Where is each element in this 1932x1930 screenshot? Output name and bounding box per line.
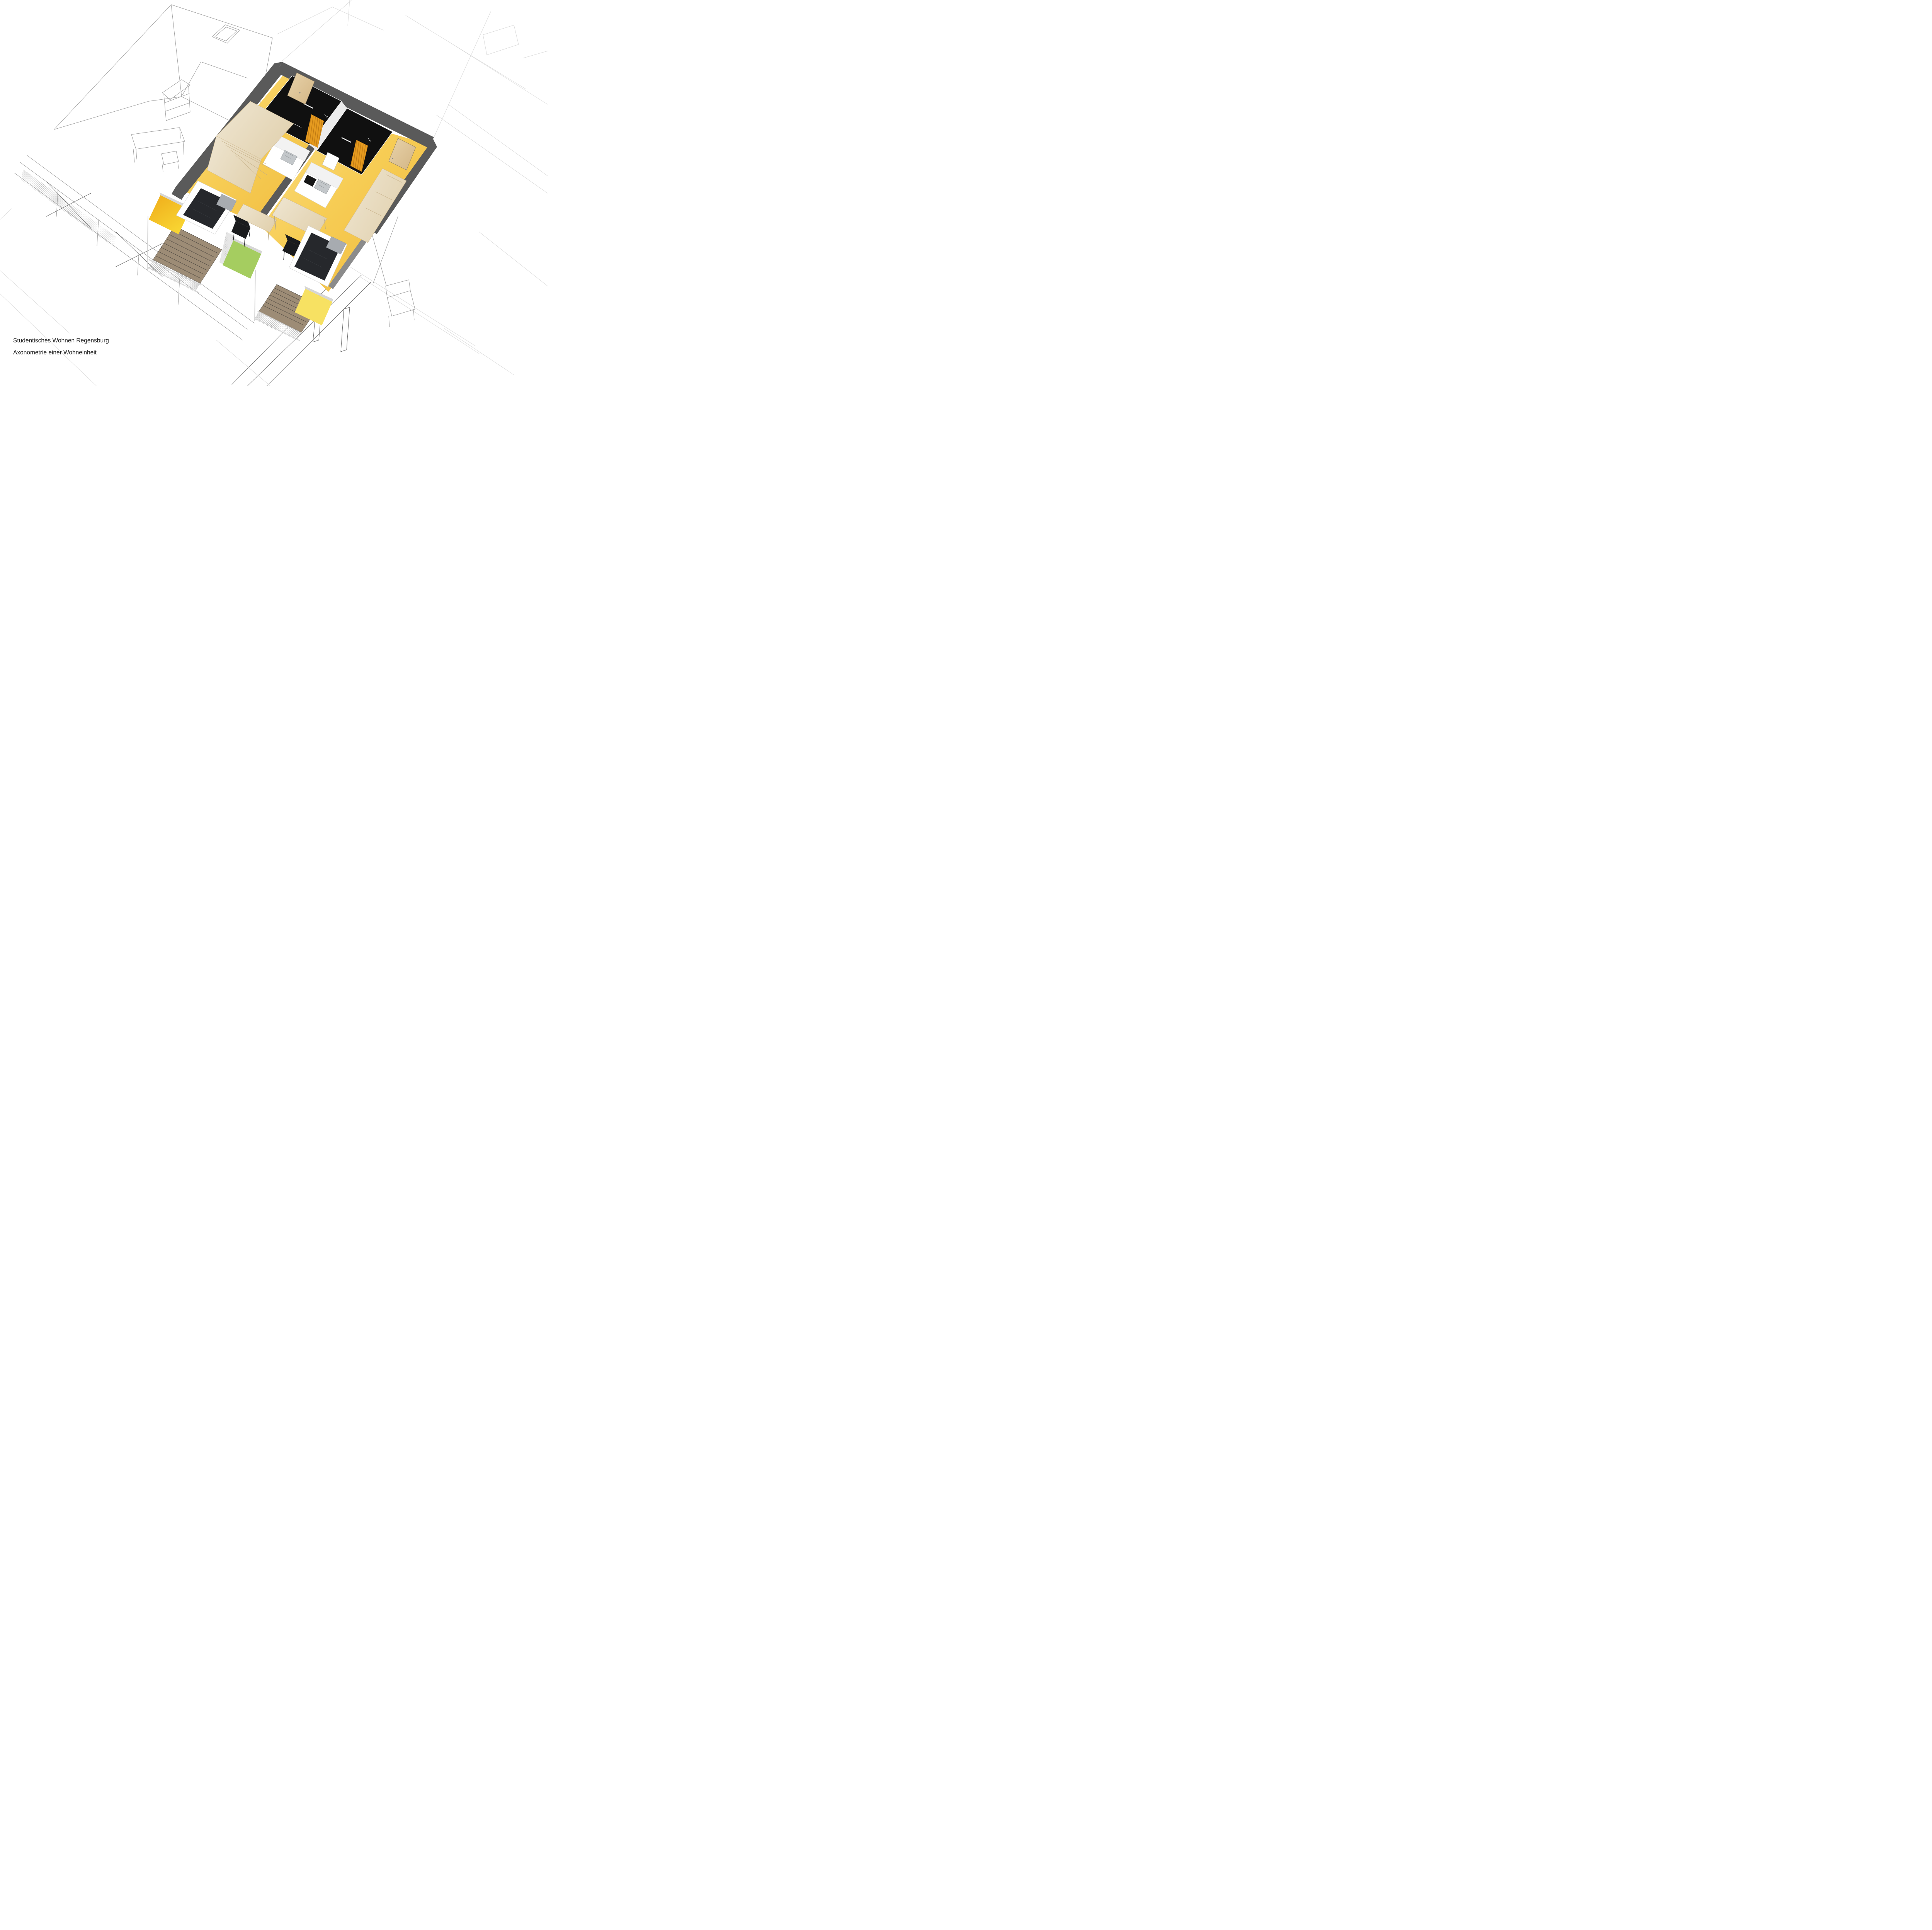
axonometric-rendering xyxy=(0,0,548,386)
architectural-drawing-page: Studentisches Wohnen Regensburg Axonomet… xyxy=(0,0,548,386)
context-table-and-stool-wireframe xyxy=(131,128,185,172)
balcony-deck-left xyxy=(148,226,222,292)
drawing-caption: Studentisches Wohnen Regensburg Axonomet… xyxy=(13,335,109,359)
caption-subtitle: Axonometrie einer Wohneinheit xyxy=(13,347,109,359)
door-handle-left xyxy=(299,92,300,93)
caption-project-title: Studentisches Wohnen Regensburg xyxy=(13,335,109,347)
context-bottom-truss xyxy=(216,267,479,386)
door-handle-right xyxy=(392,158,393,159)
unit-rendering xyxy=(147,62,437,340)
